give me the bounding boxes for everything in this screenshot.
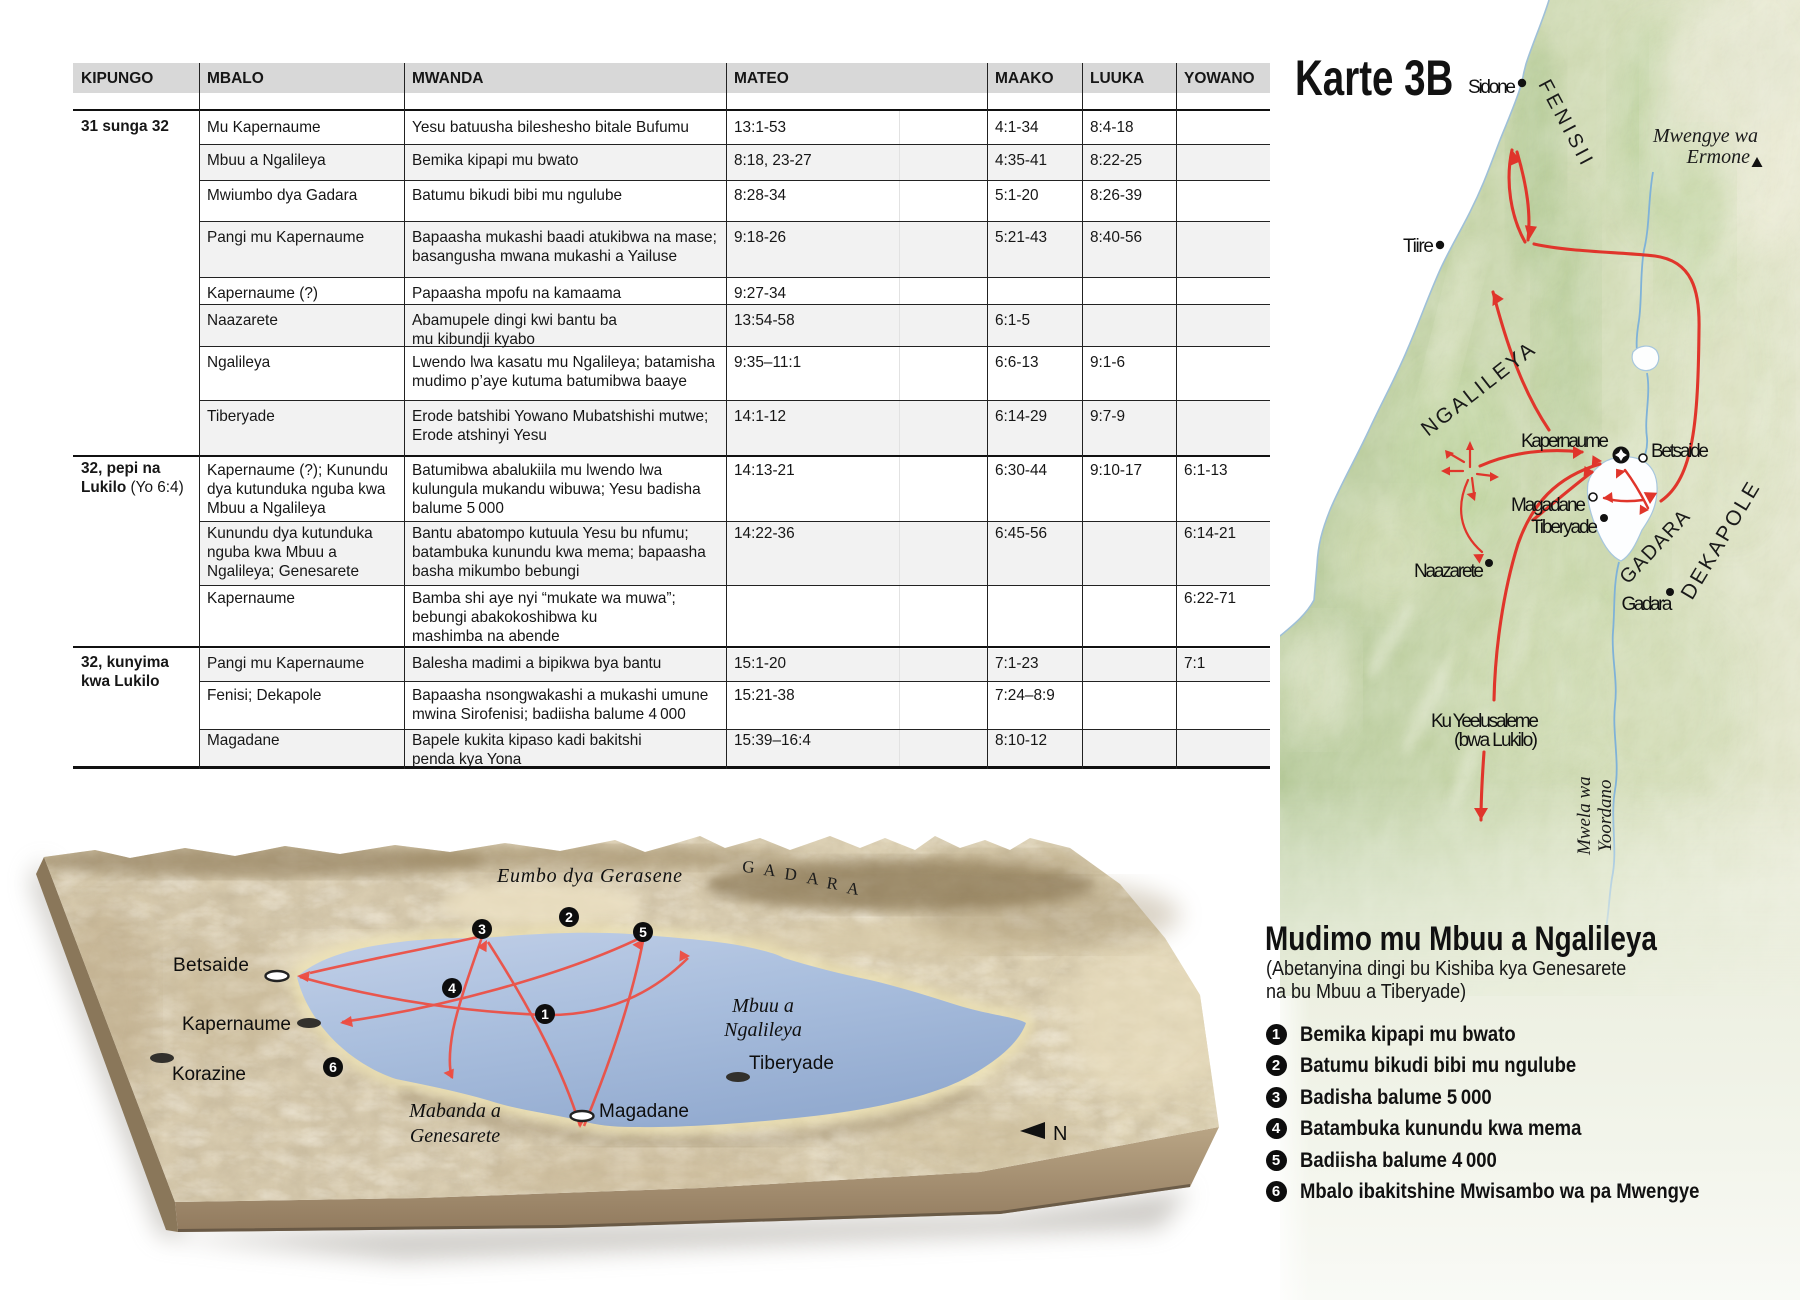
svg-text:Tiberyade: Tiberyade [1531,517,1598,538]
svg-text:Betsaide: Betsaide [173,955,249,976]
svg-text:Genesarete: Genesarete [410,1125,500,1147]
svg-text:Mwengye wa: Mwengye wa [1652,125,1758,147]
svg-text:N: N [1053,1123,1067,1145]
svg-text:Mabanda a: Mabanda a [408,1100,501,1122]
svg-text:Naazarete: Naazarete [1414,561,1484,582]
svg-text:Magadane: Magadane [1511,495,1586,516]
svg-text:G: G [742,857,756,877]
svg-text:Ermone: Ermone [1686,146,1750,168]
svg-text:5: 5 [639,924,647,940]
svg-text:Yoordano: Yoordano [1595,779,1616,852]
svg-text:Kapernaume: Kapernaume [1521,431,1609,452]
svg-text:4: 4 [448,980,456,996]
svg-text:Kapernaume: Kapernaume [182,1014,291,1035]
svg-text:3: 3 [478,921,486,937]
svg-text:Tiberyade: Tiberyade [749,1053,834,1074]
svg-text:Magadane: Magadane [599,1101,689,1122]
svg-text:Korazine: Korazine [172,1064,246,1085]
svg-text:Mwela wa: Mwela wa [1574,776,1595,856]
svg-text:Eumbo dya Gerasene: Eumbo dya Gerasene [496,865,682,887]
svg-text:1: 1 [541,1006,549,1022]
svg-text:Ngalileya: Ngalileya [723,1019,802,1041]
svg-text:(bwa Lukilo): (bwa Lukilo) [1454,730,1538,751]
svg-text:Betsaide: Betsaide [1651,441,1709,462]
svg-text:Sidone: Sidone [1468,77,1516,98]
svg-text:Ku Yeelusaleme: Ku Yeelusaleme [1431,711,1539,732]
svg-text:Gadara: Gadara [1622,594,1673,615]
svg-text:2: 2 [565,909,573,925]
svg-text:6: 6 [329,1059,337,1075]
svg-text:Mbuu a: Mbuu a [731,995,794,1017]
svg-text:D: D [784,864,799,884]
svg-text:Tiire: Tiire [1403,236,1434,257]
